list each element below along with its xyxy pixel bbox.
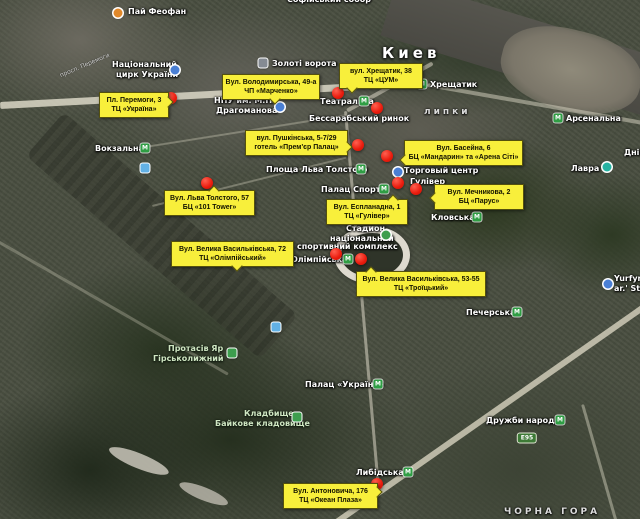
label-metro-khreshchatyk: Хрещатик xyxy=(430,80,477,89)
label-metro-palats-sportu: Палац Спорту xyxy=(321,185,386,194)
label-stadium-line3: спортивний комплекс xyxy=(297,242,398,251)
label-metro-palats-ukraina: Палац «Україна» xyxy=(305,380,384,389)
map-screenshot: Софійський соборПай ФеофанНаціональнийци… xyxy=(0,0,640,524)
callout-text: Вул. Льва Толстого, 57 xyxy=(167,194,252,203)
label-circus-line1: Національний xyxy=(112,60,177,69)
feofan-poi-icon[interactable] xyxy=(114,9,123,18)
red-location-marker[interactable] xyxy=(410,183,422,195)
label-cemetery-line1: Кладбище xyxy=(244,409,294,418)
label-sofiysky-sobor: Софійський собор xyxy=(287,0,371,4)
route-badge-e95[interactable]: E95 xyxy=(518,434,536,443)
callout-text: Вул. Велика Васильківська, 53-55 xyxy=(359,275,483,284)
label-npu-line2: Драгоманова xyxy=(216,106,277,115)
label-metro-druzhby-narodiv: Дружби народів xyxy=(486,416,562,425)
callout-text: БЦ «Мандарин» та «Арена Сіті» xyxy=(407,153,520,162)
label-dnipro-partial: Дніпро xyxy=(624,148,640,157)
callout-text: Вул. Велика Васильківська, 72 xyxy=(174,245,291,254)
shopping-mall-icon[interactable] xyxy=(394,168,403,177)
label-lavra: Лавра xyxy=(571,164,599,173)
label-zoloti-vorota: Золоті ворота xyxy=(272,59,337,68)
callout-mandarin-arena-city: Вул. Басейна, 6БЦ «Мандарин» та «Арена С… xyxy=(404,140,523,166)
callout-tc-tsum: вул. Хрещатик, 38ТЦ «ЦУМ» xyxy=(339,63,423,89)
callout-text: Вул. Мечникова, 2 xyxy=(437,188,521,197)
label-metro-pecherska: Печерська xyxy=(466,308,515,317)
callout-text: ТЦ «Україна» xyxy=(102,105,166,114)
label-yurfyrma-line1: Yurfyrma xyxy=(614,274,640,283)
red-location-marker[interactable] xyxy=(381,150,393,162)
metro-pecherska-icon[interactable]: M xyxy=(513,308,522,317)
callout-text: вул. Хрещатик, 38 xyxy=(342,67,420,76)
lavra-icon[interactable] xyxy=(603,163,612,172)
callout-text: БЦ «Парус» xyxy=(437,197,521,206)
callout-text: ТЦ «Океан Плаза» xyxy=(286,496,375,505)
circus-icon[interactable] xyxy=(171,66,180,75)
stadium-icon[interactable] xyxy=(382,231,391,240)
bottom-border xyxy=(0,519,640,524)
callout-101-tower: Вул. Льва Толстого, 57БЦ «101 Tower» xyxy=(164,190,255,216)
callout-olimpiyskiy: Вул. Велика Васильківська, 72ТЦ «Олімпій… xyxy=(171,241,294,267)
satellite-map[interactable]: Софійський соборПай ФеофанНаціональнийци… xyxy=(0,0,640,520)
callout-text: Пл. Перемоги, 3 xyxy=(102,96,166,105)
ski-area-icon[interactable] xyxy=(228,349,237,358)
red-location-marker[interactable] xyxy=(392,177,404,189)
golden-gate-landmark-icon[interactable] xyxy=(259,59,268,68)
metro-klovska-icon[interactable]: M xyxy=(473,213,482,222)
label-protasiv-yar-line1: Протасів Яр xyxy=(168,344,223,353)
red-location-marker[interactable] xyxy=(352,139,364,151)
metro-teatralna-icon[interactable]: M xyxy=(360,97,369,106)
callout-text: ТЦ «Гулівер» xyxy=(329,212,405,221)
transit-stop-icon[interactable] xyxy=(272,323,281,332)
metro-palats-sportu-icon[interactable]: M xyxy=(380,185,389,194)
university-icon[interactable] xyxy=(276,103,285,112)
industrial-building xyxy=(177,478,230,510)
callout-gulliver: Вул. Еспланадна, 1ТЦ «Гулівер» xyxy=(326,199,408,225)
label-circus-line2: цирк України xyxy=(116,70,178,79)
label-metro-arsenalna: Арсенальна xyxy=(566,114,621,123)
callout-text: ТЦ «ЦУМ» xyxy=(342,76,420,85)
metro-druzhby-narodiv-icon[interactable]: M xyxy=(556,416,565,425)
callout-text: Вул. Еспланадна, 1 xyxy=(329,203,405,212)
callout-text: ТЦ «Троїцький» xyxy=(359,284,483,293)
train-station-icon[interactable] xyxy=(141,164,150,173)
label-metro-ploshcha-lva-tolstoho: Площа Льва Толстого xyxy=(266,165,367,174)
callout-text: Вул. Басейна, 6 xyxy=(407,144,520,153)
callout-text: готель «Прем'єр Палац» xyxy=(248,143,345,152)
metro-arsenalna-icon[interactable]: M xyxy=(554,114,563,123)
label-bessarabsky-rynok: Бессарабський ринок xyxy=(309,114,409,123)
label-metro-lybidska: Либідська xyxy=(356,468,404,477)
label-stadium-line1: Стадион xyxy=(346,224,385,233)
callout-tc-ukraina: Пл. Перемоги, 3ТЦ «Україна» xyxy=(99,92,169,118)
callout-parus: Вул. Мечникова, 2БЦ «Парус» xyxy=(434,184,524,210)
metro-ploshcha-lva-tolstoho-icon[interactable]: M xyxy=(357,165,366,174)
callout-chp-marchenko: Вул. Володимирська, 49-аЧП «Марченко» xyxy=(222,74,320,100)
label-metro-klovska: Кловська xyxy=(431,213,475,222)
label-protasiv-yar-line2: Гірськолижний xyxy=(153,354,223,363)
callout-ocean-plaza: Вул. Антоновича, 176ТЦ «Океан Плаза» xyxy=(283,483,378,509)
metro-olimpiiska-icon[interactable]: M xyxy=(344,255,353,264)
callout-text: Вул. Володимирська, 49-а xyxy=(225,78,317,87)
callout-text: Вул. Антоновича, 176 xyxy=(286,487,375,496)
cemetery-icon[interactable] xyxy=(293,413,302,422)
red-location-marker[interactable] xyxy=(355,253,367,265)
callout-text: ТЦ «Олімпійський» xyxy=(174,254,291,263)
label-metro-vokzalna: Вокзальна xyxy=(95,144,144,153)
label-chorna-hora: ЧОРНА ГОРА xyxy=(504,507,600,517)
metro-palats-ukraina-icon[interactable]: M xyxy=(374,380,383,389)
metro-lybidska-icon[interactable]: M xyxy=(404,468,413,477)
label-pai-feofan: Пай Феофан xyxy=(128,7,186,16)
label-lypky: липки xyxy=(424,107,471,117)
callout-text: ЧП «Марченко» xyxy=(225,87,317,96)
red-location-marker[interactable] xyxy=(371,102,383,114)
road-pechersk xyxy=(581,404,619,520)
label-torgovy-tsentr: Торговый центр xyxy=(404,166,478,175)
callout-text: БЦ «101 Tower» xyxy=(167,203,252,212)
metro-vokzalna-icon[interactable]: M xyxy=(141,144,150,153)
label-city-kyiv: Киев xyxy=(382,44,440,62)
callout-premier-palace: вул. Пушкінська, 5-7/29готель «Прем'єр П… xyxy=(245,130,348,156)
callout-troitskiy: Вул. Велика Васильківська, 53-55ТЦ «Трої… xyxy=(356,271,486,297)
red-location-marker[interactable] xyxy=(330,248,342,260)
yurfyrma-icon[interactable] xyxy=(604,280,613,289)
label-peremohy-avenue: просп. Перемоги xyxy=(59,52,111,79)
industrial-building xyxy=(106,442,171,480)
label-yurfyrma-line2: ar.' Str H xyxy=(614,284,640,293)
callout-text: вул. Пушкінська, 5-7/29 xyxy=(248,134,345,143)
